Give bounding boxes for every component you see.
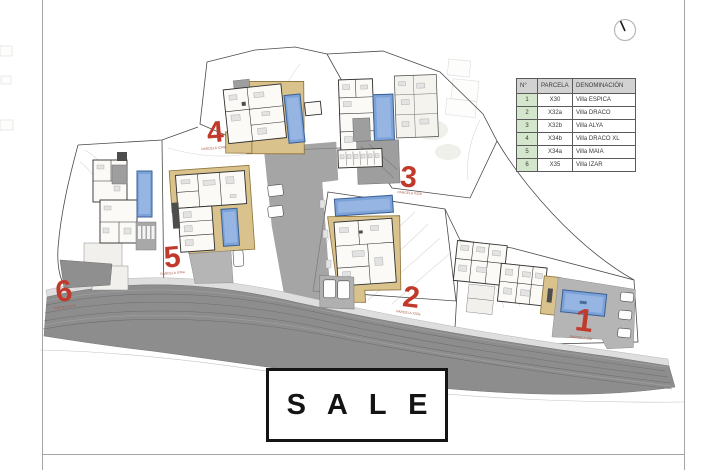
legend-cell-number: 6	[517, 159, 538, 172]
legend-cell-villa: Villa DRACO XL	[573, 133, 636, 146]
villa-5-floorplan	[169, 165, 257, 286]
legend-header-row: N° PARCELA DENOMINACIÓN	[517, 79, 636, 94]
legend-cell-number: 2	[517, 107, 538, 120]
legend-cell-villa: Villa MAIA	[573, 146, 636, 159]
legend-row: 1 X30 Villa ESPICA	[517, 94, 636, 107]
sale-banner: S A L E	[266, 368, 448, 442]
svg-text:PARCELA X32b: PARCELA X32b	[397, 190, 422, 196]
car-icon	[268, 205, 284, 218]
sale-banner-label: S A L E	[280, 389, 435, 422]
plot-marker-3: 3 PARCELA X32b	[397, 160, 424, 196]
svg-text:PARCELA X34b: PARCELA X34b	[201, 145, 226, 151]
legend-cell-parcela: X30	[538, 94, 573, 107]
legend-row: 3 X32b Villa ALYA	[517, 120, 636, 133]
villa-4-floorplan	[218, 73, 311, 161]
car-icon	[233, 250, 244, 267]
villa-3-floorplan	[335, 75, 440, 185]
svg-text:3: 3	[399, 160, 418, 194]
villa-6-floorplan	[60, 152, 156, 290]
legend-table: N° PARCELA DENOMINACIÓN 1 X30 Villa ESPI…	[516, 78, 636, 172]
legend-cell-parcela: X34b	[538, 133, 573, 146]
legend-header-denominacion: DENOMINACIÓN	[573, 79, 636, 94]
legend-row: 4 X34b Villa DRACO XL	[517, 133, 636, 146]
plot-marker-4: 4 PARCELA X34b	[199, 115, 226, 151]
legend-cell-parcela: X35	[538, 159, 573, 172]
sheet-border-left-line	[42, 0, 43, 470]
sheet-border-right-line	[684, 0, 685, 470]
legend-cell-villa: Villa DRACO	[573, 107, 636, 120]
north-indicator-icon	[612, 17, 638, 43]
parking-stall	[304, 101, 321, 116]
car-icon	[618, 310, 632, 320]
villa-5-rooms	[176, 171, 247, 209]
legend-cell-villa: Villa ALYA	[573, 120, 636, 133]
legend-row: 2 X32a Villa DRACO	[517, 107, 636, 120]
legend-cell-number: 3	[517, 120, 538, 133]
sheet-border-bottom-line	[42, 454, 685, 455]
legend-cell-villa: Villa ESPICA	[573, 94, 636, 107]
legend-cell-parcela: X32b	[538, 120, 573, 133]
car-icon	[617, 328, 631, 338]
legend-cell-parcela: X34a	[538, 146, 573, 159]
legend-row: 6 X35 Villa IZAR	[517, 159, 636, 172]
legend-row: 5 X34a Villa MAIA	[517, 146, 636, 159]
legend-header-parcela: PARCELA	[538, 79, 573, 94]
legend-cell-number: 4	[517, 133, 538, 146]
car-icon	[620, 292, 634, 302]
site-plan-sheet: 1 PARCELA X30 2 PARCELA X32a 3 PARCELA X…	[0, 0, 726, 470]
legend-header-number: N°	[517, 79, 538, 94]
car-icon	[338, 281, 350, 299]
legend-cell-parcela: X32a	[538, 107, 573, 120]
car-icon	[268, 184, 284, 197]
legend-cell-villa: Villa IZAR	[573, 159, 636, 172]
legend-cell-number: 5	[517, 146, 538, 159]
car-icon	[324, 280, 336, 298]
legend-cell-number: 1	[517, 94, 538, 107]
svg-text:PARCELA X34a: PARCELA X34a	[160, 270, 185, 276]
